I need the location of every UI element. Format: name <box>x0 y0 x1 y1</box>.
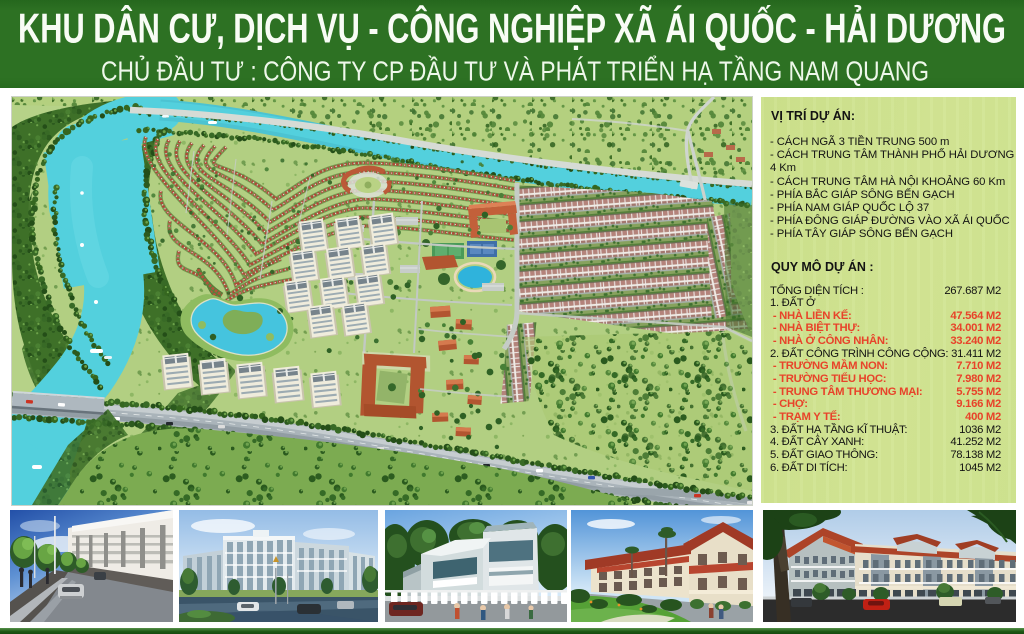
svg-text:KHU DÂN CƯ, DỊCH VỤ - CÔNG NGH: KHU DÂN CƯ, DỊCH VỤ - CÔNG NGHIỆP XÃ ÁI … <box>18 4 1006 52</box>
svg-text:CHỦ ĐẦU TƯ : CÔNG TY CP ĐẦU TƯ: CHỦ ĐẦU TƯ : CÔNG TY CP ĐẦU TƯ VÀ PHÁT T… <box>101 55 929 87</box>
